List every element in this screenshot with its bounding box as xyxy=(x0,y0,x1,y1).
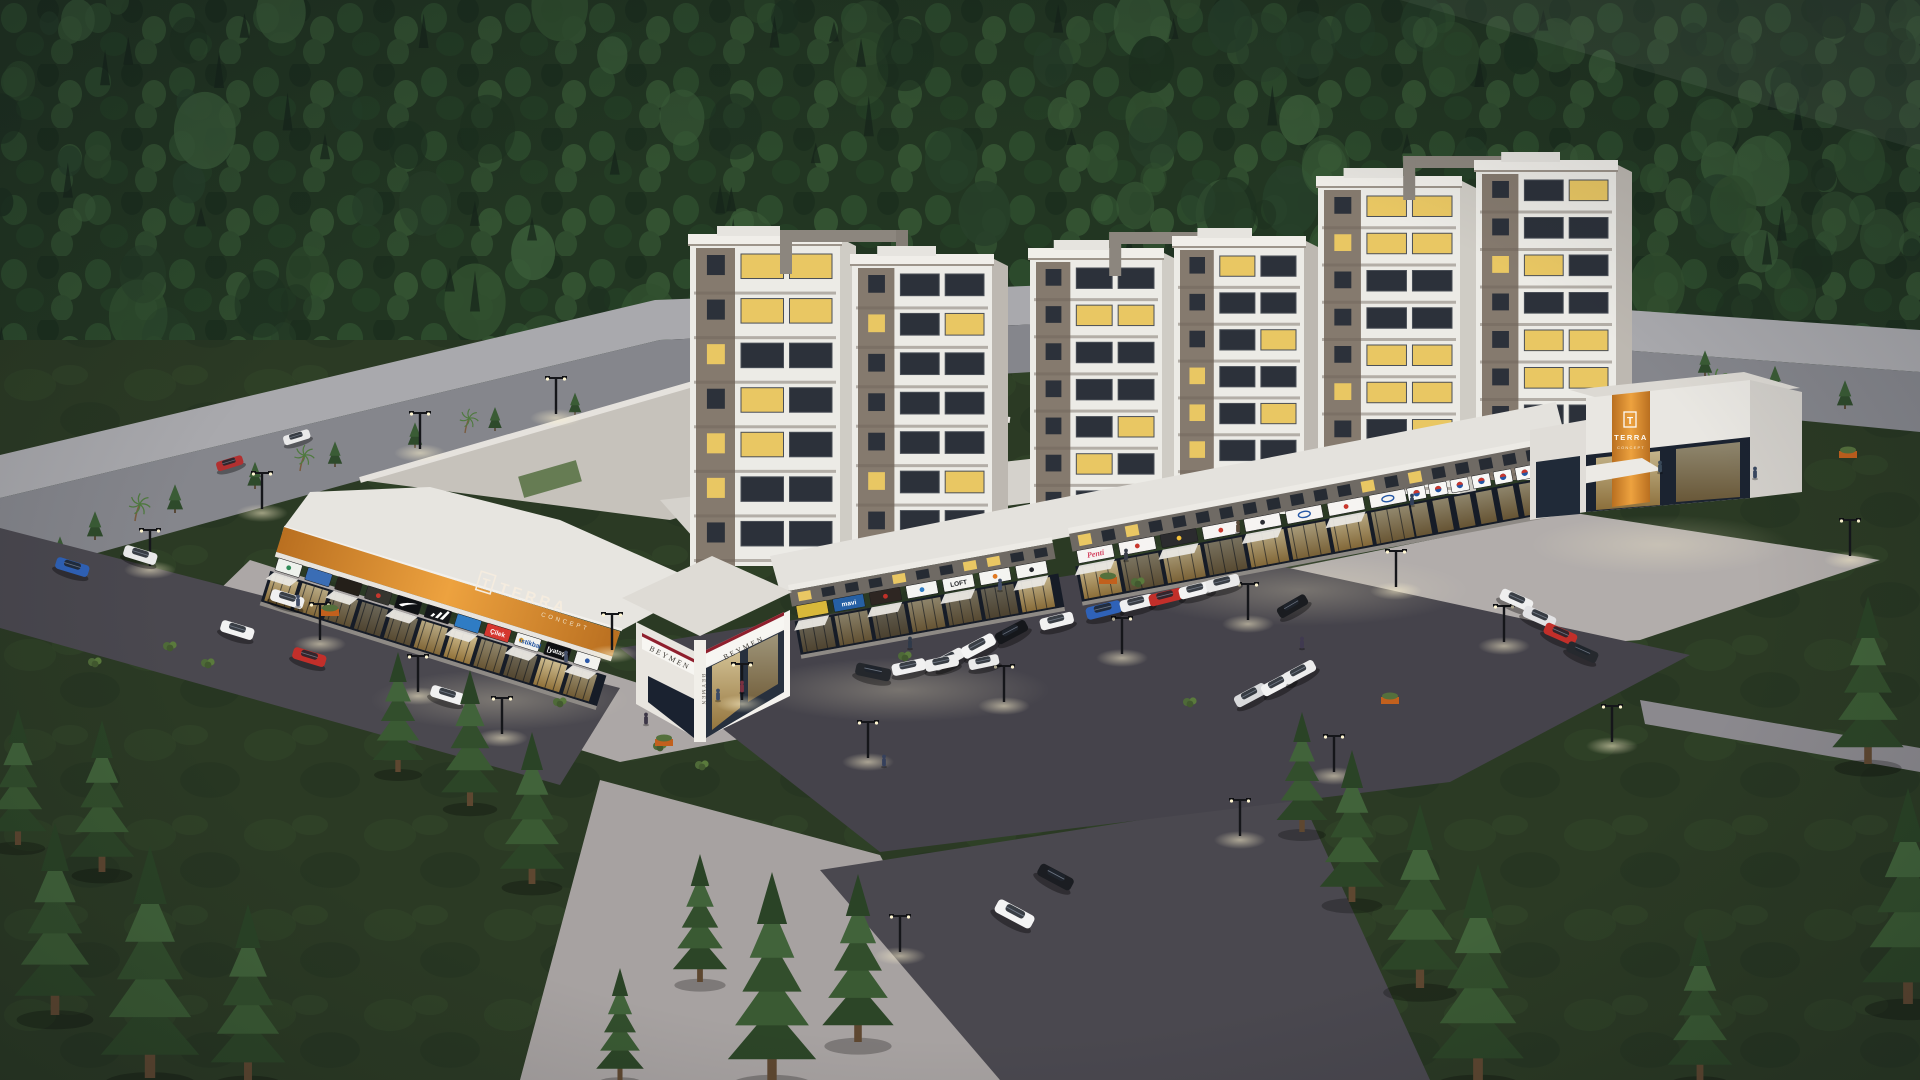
architectural-render-scene: Çilekistikbal[yataş] maviLOFT Penti T TE… xyxy=(0,0,1920,1080)
dusk-vignette xyxy=(0,0,1920,1080)
